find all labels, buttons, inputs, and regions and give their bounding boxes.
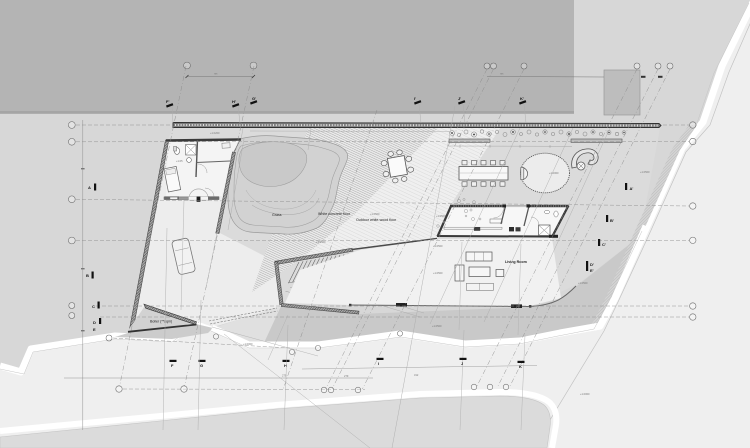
svg-text:Boiler (**sqm): Boiler (**sqm): [150, 320, 172, 324]
svg-text:A: A: [88, 185, 91, 190]
svg-text:K': K': [520, 96, 524, 101]
svg-text:E': E': [590, 268, 594, 273]
svg-text:+1.0500: +1.0500: [436, 214, 446, 218]
svg-text:White concrete floor: White concrete floor: [318, 212, 351, 216]
svg-text:I: I: [378, 361, 379, 366]
svg-text:+1.0500: +1.0500: [578, 281, 588, 285]
svg-text:B: B: [86, 273, 89, 278]
svg-text:Outdoor white-wood floor: Outdoor white-wood floor: [356, 218, 397, 222]
svg-text:D': D': [590, 262, 594, 267]
svg-text:H': H': [232, 99, 236, 104]
svg-text:+1.0000: +1.0000: [243, 342, 253, 346]
svg-text:J: J: [461, 361, 463, 366]
svg-text:+1.0500: +1.0500: [433, 271, 443, 275]
svg-text:G': G': [252, 96, 256, 101]
svg-text:A': A': [630, 186, 634, 191]
svg-text:+1.0000: +1.0000: [580, 392, 590, 396]
svg-text:K: K: [519, 364, 522, 369]
svg-text:E: E: [93, 327, 96, 332]
svg-text:279: 279: [344, 374, 349, 378]
svg-text:+1.0000: +1.0000: [549, 171, 559, 175]
svg-text:D: D: [93, 320, 96, 325]
svg-text:C: C: [92, 304, 95, 309]
svg-text:F': F': [166, 99, 169, 104]
svg-text:+1.0500: +1.0500: [432, 324, 442, 328]
svg-text:+1.05: +1.05: [176, 159, 183, 163]
svg-text:+1.0500: +1.0500: [370, 212, 380, 216]
svg-text:+1.0500: +1.0500: [433, 244, 443, 248]
svg-text:312: 312: [414, 373, 419, 377]
svg-text:B': B': [610, 218, 614, 223]
svg-text:G: G: [200, 363, 203, 368]
svg-text:+1.0500: +1.0500: [316, 240, 326, 244]
svg-text:+1.0200: +1.0200: [210, 131, 220, 135]
svg-text:I': I': [414, 96, 416, 101]
svg-text:Living Room: Living Room: [505, 260, 527, 264]
svg-text:J': J': [458, 96, 461, 101]
svg-text:Grass: Grass: [272, 213, 282, 217]
svg-text:C': C': [602, 242, 606, 247]
svg-text:+1.0500: +1.0500: [640, 170, 650, 174]
